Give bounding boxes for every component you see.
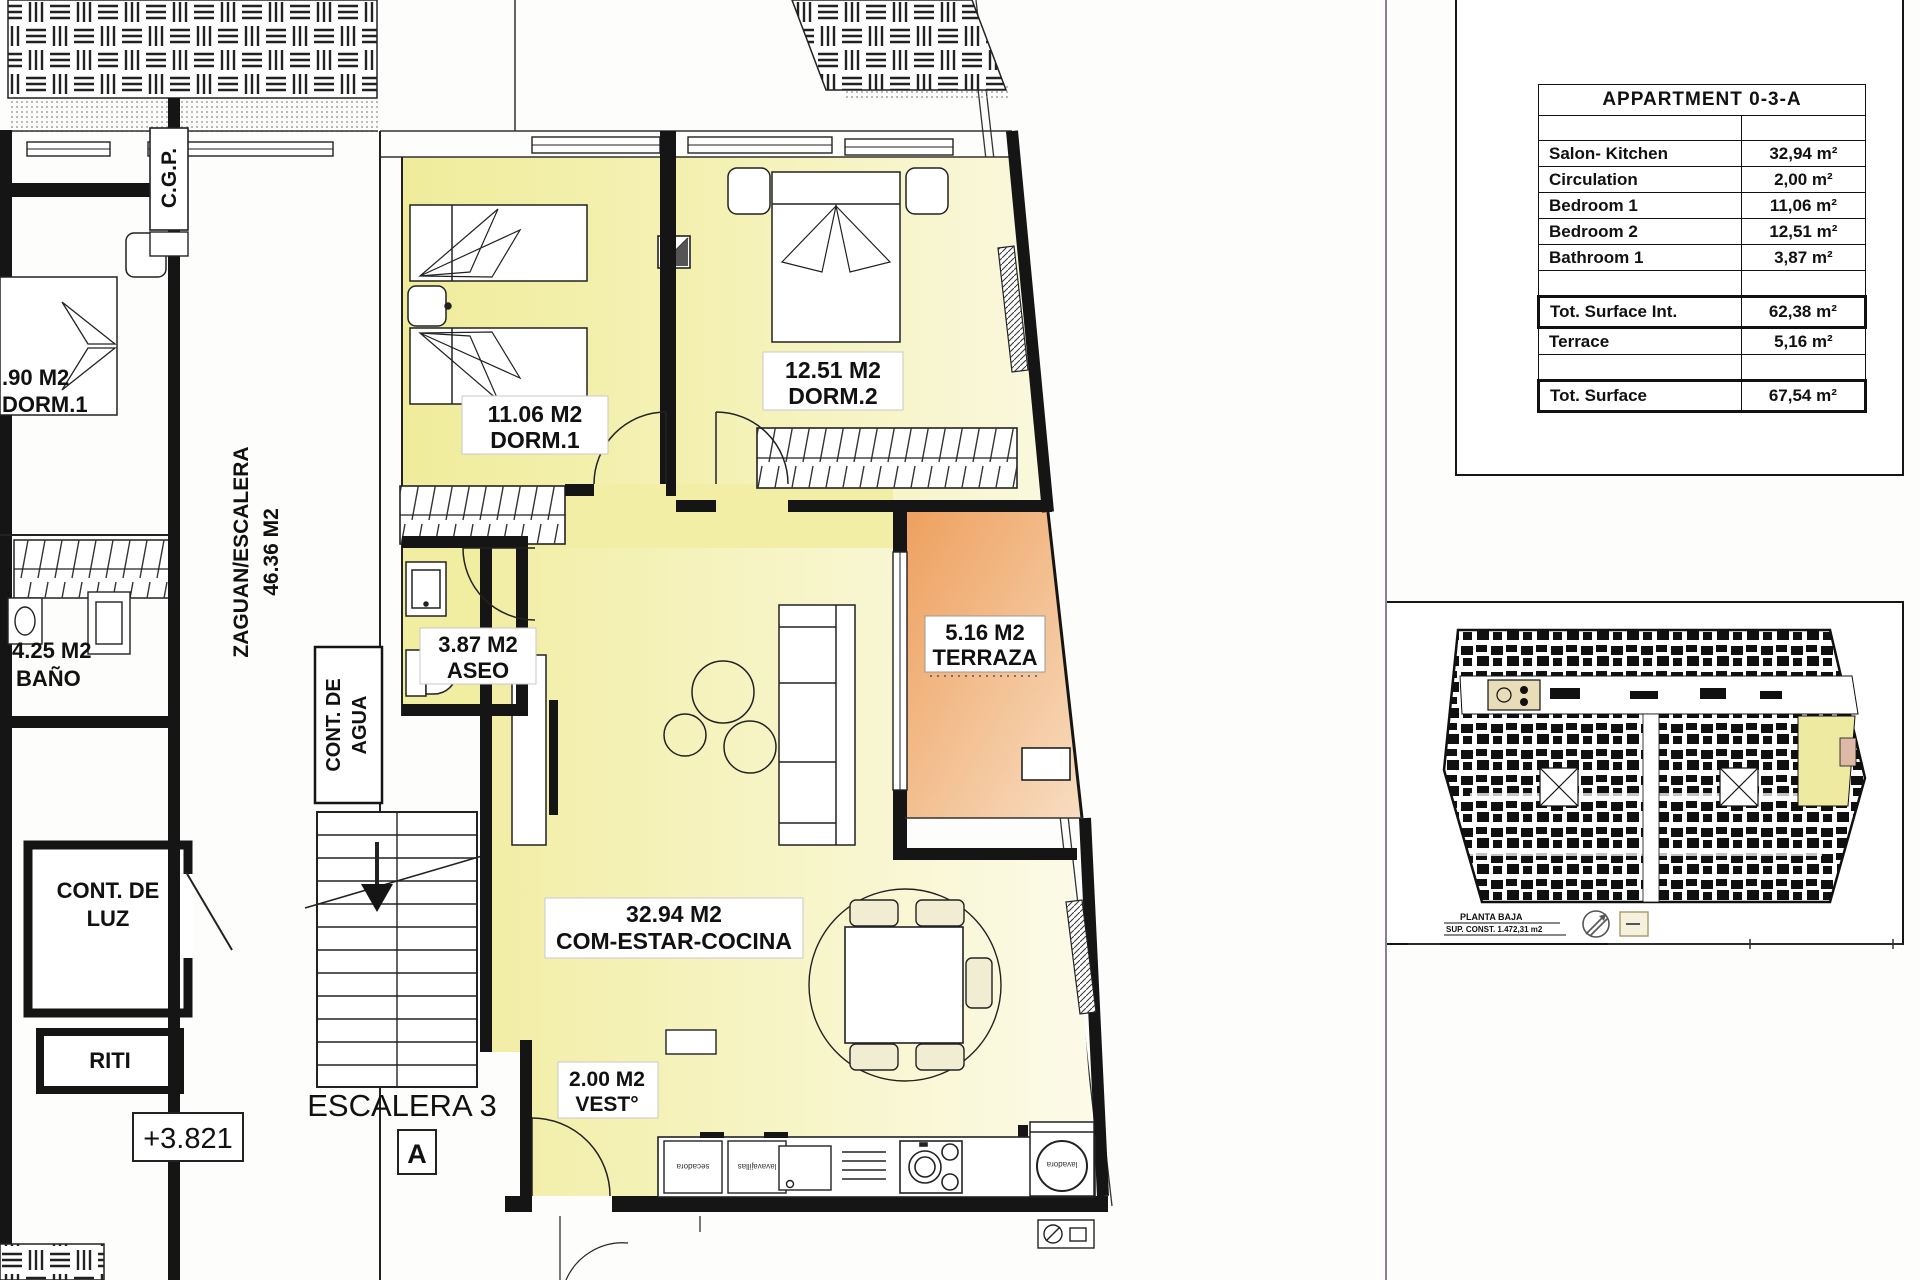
svg-text:12.51 M2: 12.51 M2: [785, 357, 881, 383]
label-appliance-2: lavavajillas: [738, 1162, 777, 1171]
svg-text:SUP. CONST. 1.472,31 m2: SUP. CONST. 1.472,31 m2: [1446, 925, 1543, 934]
ac-unit: [1022, 748, 1070, 780]
svg-text:COM-ESTAR-COCINA: COM-ESTAR-COCINA: [556, 928, 792, 954]
svg-text:DORM.1: DORM.1: [2, 392, 88, 417]
dorm2-wardrobe: [757, 428, 1017, 488]
svg-text:11.06 M2: 11.06 M2: [488, 401, 583, 427]
terrace-window: [893, 552, 907, 790]
label-appliance-3: lavadora: [1046, 1160, 1077, 1169]
table-row-total-interior: Tot. Surface Int.62,38 m²: [1539, 297, 1866, 328]
dining-table: [845, 927, 963, 1043]
label-cont-luz-1: CONT. DE: [57, 878, 160, 903]
label-living: 32.94 M2 COM-ESTAR-COCINA: [545, 898, 803, 958]
table-row: Bedroom 111,06 m²: [1539, 193, 1866, 219]
label-vest: 2.00 M2 VEST°: [558, 1062, 658, 1118]
dimension-line: [1408, 939, 1903, 949]
label-dorm1: 11.06 M2 DORM.1: [462, 396, 608, 454]
label-dorm2: 12.51 M2 DORM.2: [763, 352, 903, 410]
table-row-terrace: Terrace5,16 m²: [1539, 328, 1866, 355]
svg-text:DORM.1: DORM.1: [490, 427, 580, 453]
svg-text:+3.821: +3.821: [143, 1123, 233, 1155]
label-riti: RITI: [89, 1048, 131, 1073]
washing-machine: [1030, 1122, 1094, 1196]
table-title: APPARTMENT 0-3-A: [1539, 85, 1866, 116]
label-escalera: ESCALERA 3: [307, 1088, 497, 1123]
dorm2-nightstand-left: [728, 168, 770, 214]
north-arrow-icon: [1583, 911, 1609, 937]
svg-text:2.00 M2: 2.00 M2: [569, 1068, 645, 1091]
svg-text:32.94 M2: 32.94 M2: [626, 901, 722, 927]
table-row-total: Tot. Surface67,54 m²: [1539, 381, 1866, 412]
svg-text:5.16 M2: 5.16 M2: [945, 620, 1025, 645]
svg-text:VEST°: VEST°: [575, 1093, 638, 1116]
dining-chair: [850, 900, 898, 926]
svg-text:3.87 M2: 3.87 M2: [438, 632, 518, 657]
svg-text:PLANTA BAJA: PLANTA BAJA: [1460, 912, 1523, 922]
tv-screen: [549, 700, 558, 815]
stairs-escalera3: [305, 812, 482, 1087]
window-top-dorm2: [688, 137, 953, 155]
label-zaguan-1: ZAGUAN/ESCALERA: [230, 446, 253, 657]
window-top-dorm1: [532, 137, 660, 153]
label-cont-agua-1: CONT. DE: [323, 678, 345, 771]
dorm1-wardrobe: [400, 486, 565, 544]
floorplan-sheet: 11.06 M2 DORM.1 12.51 M2 DORM.2 3.87 M2 …: [0, 0, 1920, 1280]
apartment-areas-table: APPARTMENT 0-3-A Salon- Kitchen32,94 m² …: [1537, 84, 1867, 413]
doormat: [666, 1030, 716, 1054]
keyplan-caption: PLANTA BAJA SUP. CONST. 1.472,31 m2: [1444, 911, 1648, 937]
kitchen-stove: [900, 1141, 962, 1193]
dining-chair: [916, 1044, 964, 1070]
keyplan-drawing: [1444, 630, 1865, 902]
svg-text:ASEO: ASEO: [447, 658, 509, 683]
table-row: Salon- Kitchen32,94 m²: [1539, 141, 1866, 167]
svg-text:A: A: [407, 1139, 427, 1169]
dining-chair: [916, 900, 964, 926]
level-marker: +3.821: [133, 1113, 243, 1161]
svg-text:4.25 M2: 4.25 M2: [12, 638, 92, 663]
label-appliance-1: secadora: [676, 1162, 709, 1171]
dorm1-nightstand: [408, 286, 446, 326]
dining-chair: [850, 1044, 898, 1070]
table-row: Bathroom 13,87 m²: [1539, 245, 1866, 271]
dorm2-nightstand-right: [906, 168, 948, 214]
sofa: [779, 605, 855, 845]
svg-text:TERRAZA: TERRAZA: [932, 645, 1037, 670]
main-floorplan: 11.06 M2 DORM.1 12.51 M2 DORM.2 3.87 M2 …: [0, 0, 1386, 1280]
keyplan-kitchen-block: [1488, 680, 1540, 710]
pavement-hatch-right: [792, 0, 1010, 100]
svg-text:.90 M2: .90 M2: [2, 365, 69, 390]
left-lower-hatch: [0, 1244, 104, 1280]
left-closet: [14, 540, 172, 598]
svg-text:BAÑO: BAÑO: [16, 666, 81, 691]
pavement-hatch-left: [8, 0, 378, 132]
table-row: Circulation2,00 m²: [1539, 167, 1866, 193]
label-cont-luz-2: LUZ: [87, 906, 130, 931]
label-zaguan-2: 46.36 M2: [260, 508, 283, 596]
label-terraza: 5.16 M2 TERRAZA: [925, 616, 1045, 676]
svg-text:DORM.2: DORM.2: [788, 383, 877, 409]
table-row: Bedroom 212,51 m²: [1539, 219, 1866, 245]
label-cgp: C.G.P.: [158, 148, 181, 208]
dining-chair: [966, 958, 992, 1008]
label-aseo: 3.87 M2 ASEO: [420, 628, 536, 684]
section-marker-a: A: [398, 1130, 436, 1174]
keyplan-terrace-mark: [1840, 738, 1856, 766]
keyplan-overview: PLANTA BAJA SUP. CONST. 1.472,31 m2: [1400, 618, 1905, 952]
label-cont-agua-2: AGUA: [349, 696, 371, 755]
